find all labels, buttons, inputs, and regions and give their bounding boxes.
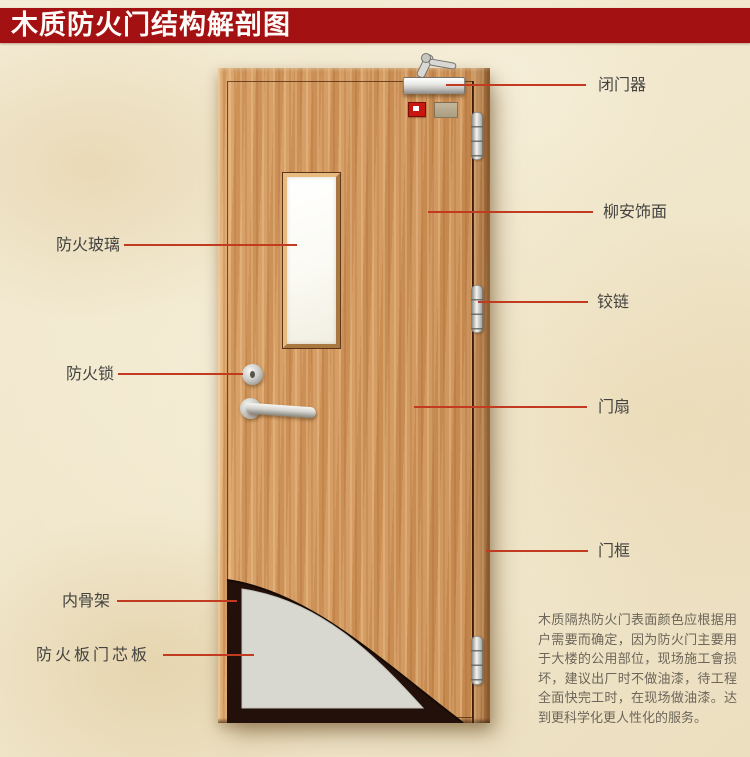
label-inner-skeleton: 内骨架 xyxy=(62,591,110,610)
leader-fire-lock xyxy=(118,373,243,375)
description-note: 木质隔热防火门表面颜色应根据用户需要而确定，因为防火门主要用于大楼的公用部位，现… xyxy=(538,611,737,728)
fire-door-illustration xyxy=(218,68,490,723)
fire-lock-cylinder xyxy=(242,364,263,385)
hinge-middle xyxy=(471,285,483,333)
label-fire-glass: 防火玻璃 xyxy=(56,235,120,254)
leader-hinge xyxy=(478,301,588,303)
leader-fire-glass xyxy=(124,244,297,246)
leader-inner-skeleton xyxy=(117,600,237,602)
core-board-shape xyxy=(242,589,423,708)
leader-door-closer xyxy=(446,84,586,86)
hinge-top xyxy=(471,112,483,160)
leader-core-board xyxy=(163,654,254,656)
label-veneer: 柳安饰面 xyxy=(603,202,667,221)
label-core-board: 防火板门芯板 xyxy=(36,645,150,664)
label-door-frame: 门框 xyxy=(598,541,630,560)
hinge-bottom xyxy=(471,636,483,685)
leader-door-frame xyxy=(486,550,588,552)
leader-door-leaf xyxy=(414,406,587,408)
cutaway-section xyxy=(218,568,490,723)
alarm-indicator xyxy=(408,102,426,117)
page-title: 木质防火门结构解剖图 xyxy=(0,8,750,43)
label-plate xyxy=(434,102,458,118)
label-hinge: 铰链 xyxy=(597,292,629,311)
label-fire-lock: 防火锁 xyxy=(66,364,114,383)
label-door-leaf: 门扇 xyxy=(598,397,630,416)
leader-veneer xyxy=(428,211,593,213)
title-banner: 木质防火门结构解剖图 xyxy=(0,8,750,43)
fire-glass-window xyxy=(283,173,340,348)
label-door-closer: 闭门器 xyxy=(598,75,646,94)
